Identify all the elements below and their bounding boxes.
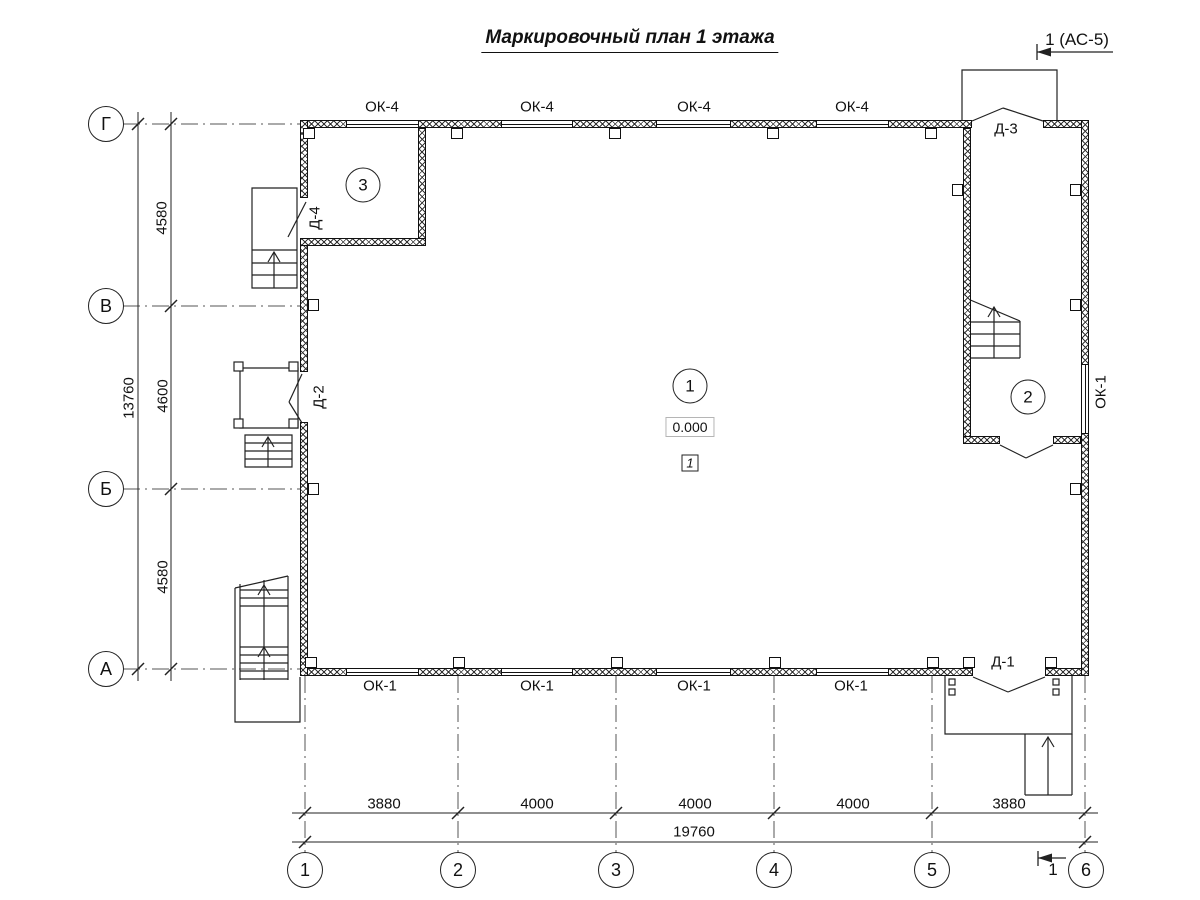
dim-bottom-2: 4000: [520, 796, 553, 813]
dim-bottom-4: 4000: [836, 796, 869, 813]
axis-row-a: А: [88, 651, 124, 687]
wall-top: [888, 120, 972, 128]
wall-top: [572, 120, 657, 128]
window-label-bottom-2: ОК-1: [520, 678, 554, 695]
axis-col-2: 2: [440, 852, 476, 888]
wall-right: [1081, 120, 1089, 365]
wall-room2-vertical: [963, 128, 971, 442]
stairs-right: [968, 299, 1020, 358]
pilaster: [303, 128, 315, 139]
door-swing-d2: [289, 374, 302, 423]
grid-lines: [123, 124, 1085, 853]
window-label-top-2: ОК-4: [520, 99, 554, 116]
pilaster: [1070, 299, 1081, 311]
pilaster: [769, 657, 781, 668]
door-swing-room2: [1000, 445, 1053, 458]
window-label-top-3: ОК-4: [677, 99, 711, 116]
pilaster: [308, 483, 319, 495]
axis-col-3: 3: [598, 852, 634, 888]
door-label-d4: Д-4: [307, 206, 324, 230]
wall-left: [300, 238, 308, 372]
axis-col-6: 6: [1068, 852, 1104, 888]
window-top-1: [347, 120, 418, 128]
door-swing-d3: [972, 108, 1043, 121]
window-right: [1081, 365, 1089, 433]
wall-room3-vertical: [418, 128, 426, 246]
window-bottom-4: [817, 668, 888, 676]
axis-col-5: 5: [914, 852, 950, 888]
pilaster: [308, 299, 319, 311]
pilaster: [611, 657, 623, 668]
window-label-right: ОК-1: [1093, 375, 1110, 409]
vestibule-top-right: [962, 70, 1057, 121]
dim-bottom-total: 19760: [673, 824, 715, 841]
door-swing-d1: [973, 677, 1045, 692]
pilaster: [925, 128, 937, 139]
axis-col-1: 1: [287, 852, 323, 888]
window-bottom-2: [502, 668, 572, 676]
window-label-bottom-1: ОК-1: [363, 678, 397, 695]
axis-row-b: Б: [88, 471, 124, 507]
door-label-d1: Д-1: [991, 654, 1015, 671]
wall-room3-horizontal: [300, 238, 426, 246]
pilaster: [451, 128, 463, 139]
window-label-top-1: ОК-4: [365, 99, 399, 116]
dim-bottom-3: 4000: [678, 796, 711, 813]
axis-col-4: 4: [756, 852, 792, 888]
stairs-bottom-left: [235, 576, 300, 722]
drawing-title: Маркировочный план 1 этажа: [481, 27, 778, 53]
wall-bottom: [418, 668, 502, 676]
window-bottom-3: [657, 668, 730, 676]
wall-bottom: [572, 668, 657, 676]
pilaster: [609, 128, 621, 139]
wall-top: [418, 120, 502, 128]
pilaster: [1045, 657, 1057, 668]
pilaster: [927, 657, 939, 668]
pilaster: [1070, 184, 1081, 196]
window-label-bottom-3: ОК-1: [677, 678, 711, 695]
section-label-bottom: 1: [1048, 860, 1057, 880]
elevation-mark: 0.000: [665, 417, 714, 437]
zone-mark: 1: [682, 455, 699, 472]
room-number-2: 2: [1011, 380, 1046, 415]
room-number-1: 1: [673, 369, 708, 404]
room-number-3: 3: [346, 168, 381, 203]
window-top-3: [657, 120, 730, 128]
wall-bottom: [730, 668, 817, 676]
window-top-4: [817, 120, 888, 128]
wall-left: [300, 422, 308, 676]
door-label-d3: Д-3: [994, 121, 1018, 138]
porch-mid-left: [234, 362, 302, 467]
dimension-ticks: [132, 118, 1091, 848]
dimension-lines: [138, 112, 1098, 842]
plan-linework: [0, 0, 1200, 900]
axis-row-g: Г: [88, 106, 124, 142]
door-label-d2: Д-2: [311, 385, 328, 409]
window-bottom-1: [347, 668, 418, 676]
porch-bottom-right: [945, 676, 1072, 795]
wall-top: [730, 120, 817, 128]
wall-room2-bottom: [963, 436, 1000, 444]
dim-left-3: 4580: [155, 560, 172, 593]
pilaster: [453, 657, 465, 668]
pilaster: [767, 128, 779, 139]
pilaster: [305, 657, 317, 668]
window-label-top-4: ОК-4: [835, 99, 869, 116]
window-top-2: [502, 120, 572, 128]
dim-left-total: 13760: [121, 377, 138, 419]
window-label-bottom-4: ОК-1: [834, 678, 868, 695]
dim-bottom-1: 3880: [367, 796, 400, 813]
pilaster: [952, 184, 963, 196]
dim-left-2: 4600: [155, 379, 172, 412]
porch-top-left: [252, 188, 306, 288]
dim-left-1: 4580: [154, 201, 171, 234]
wall-room2-bottom: [1053, 436, 1081, 444]
pilaster: [963, 657, 975, 668]
axis-row-v: В: [88, 288, 124, 324]
wall-bottom: [888, 668, 973, 676]
floor-plan-sheet: Маркировочный план 1 этажа 1 (АС-5) 1 Г …: [0, 0, 1200, 900]
wall-right: [1081, 433, 1089, 676]
dim-bottom-5: 3880: [992, 796, 1025, 813]
section-label-top: 1 (АС-5): [1045, 30, 1109, 50]
pilaster: [1070, 483, 1081, 495]
